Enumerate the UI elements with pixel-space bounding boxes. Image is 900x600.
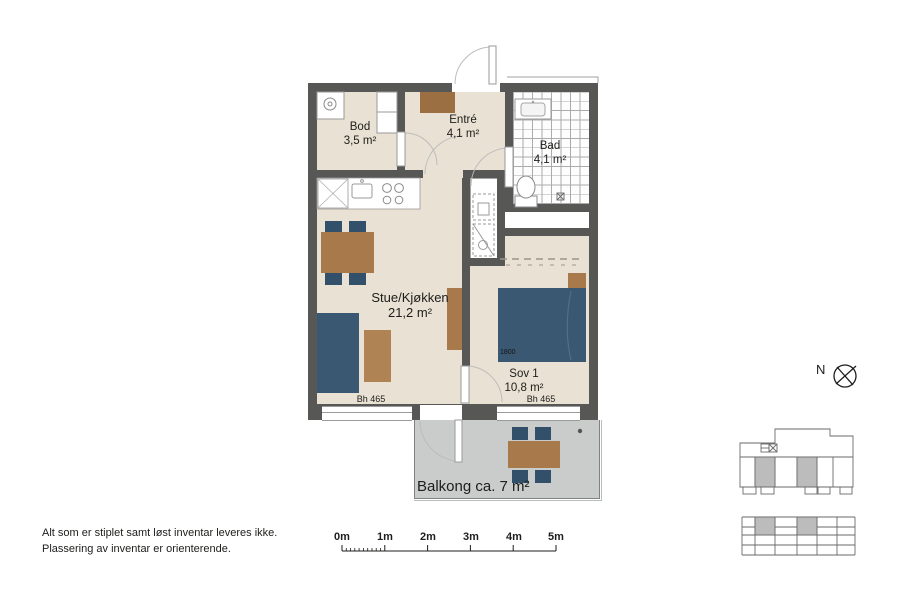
scale-bar <box>342 545 556 551</box>
neighbour-wall-line <box>507 77 598 83</box>
room-label-bad: Bad 4,1 m² <box>534 139 567 167</box>
washing-machine-icon <box>317 92 344 119</box>
ventilation-unit-icon <box>473 224 494 256</box>
door-leaves <box>397 46 513 462</box>
wardrobe-dashed-outline <box>500 259 584 265</box>
room-name: Bod <box>344 120 377 134</box>
balcony-drain-icon <box>578 429 582 433</box>
window-sill-annotation: Bh 465 <box>357 394 386 404</box>
room-area: 3,5 m² <box>344 134 377 148</box>
bod-cabinet <box>377 92 397 133</box>
north-label: N <box>816 362 825 377</box>
room-label-sov1: Sov 1 10,8 m² <box>505 367 544 395</box>
disclaimer-line-1: Alt som er stiplet samt løst inventar le… <box>42 527 277 539</box>
kitchen-counter <box>317 178 420 209</box>
floor-drain-icon <box>557 193 564 200</box>
room-area: 4,1 m² <box>447 127 480 141</box>
scale-tick-label: 4m <box>506 531 522 543</box>
disclaimer-line-2: Plassering av inventar er orienterende. <box>42 543 231 555</box>
room-name: Sov 1 <box>505 367 544 381</box>
room-label-bod: Bod 3,5 m² <box>344 120 377 148</box>
scale-tick-label: 1m <box>377 531 393 543</box>
room-label-balkong: Balkong ca. 7 m² <box>417 478 530 495</box>
scale-tick-label: 5m <box>548 531 564 543</box>
compass-icon <box>834 365 856 387</box>
room-name: Entré <box>447 113 480 127</box>
plan-linework <box>0 0 900 600</box>
water-heater-icon <box>473 194 494 220</box>
room-name: Bad <box>534 139 567 153</box>
key-plan-elevation <box>742 517 855 555</box>
toilet-icon <box>515 176 537 207</box>
room-area: 10,8 m² <box>505 381 544 395</box>
room-area: 4,1 m² <box>534 153 567 167</box>
room-name: Stue/Kjøkken <box>371 290 448 305</box>
scale-tick-label: 0m <box>334 531 350 543</box>
room-label-stue: Stue/Kjøkken 21,2 m² <box>371 290 448 320</box>
room-label-entre: Entré 4,1 m² <box>447 113 480 141</box>
bed-fold-line <box>567 291 571 360</box>
floorplan-canvas: Bod 3,5 m² Entré 4,1 m² Bad 4,1 m² Stue/… <box>0 0 900 600</box>
vanity-sink-icon <box>515 99 551 119</box>
door-swing-arcs <box>405 47 509 461</box>
scale-tick-label: 2m <box>420 531 436 543</box>
window-sill-annotation: Bh 465 <box>527 394 556 404</box>
scale-tick-label: 3m <box>463 531 479 543</box>
room-area: 21,2 m² <box>371 305 448 320</box>
key-plan-footprint <box>740 429 853 494</box>
elevator-icon <box>761 444 777 452</box>
bed-width-annotation: 1800 <box>500 349 516 356</box>
